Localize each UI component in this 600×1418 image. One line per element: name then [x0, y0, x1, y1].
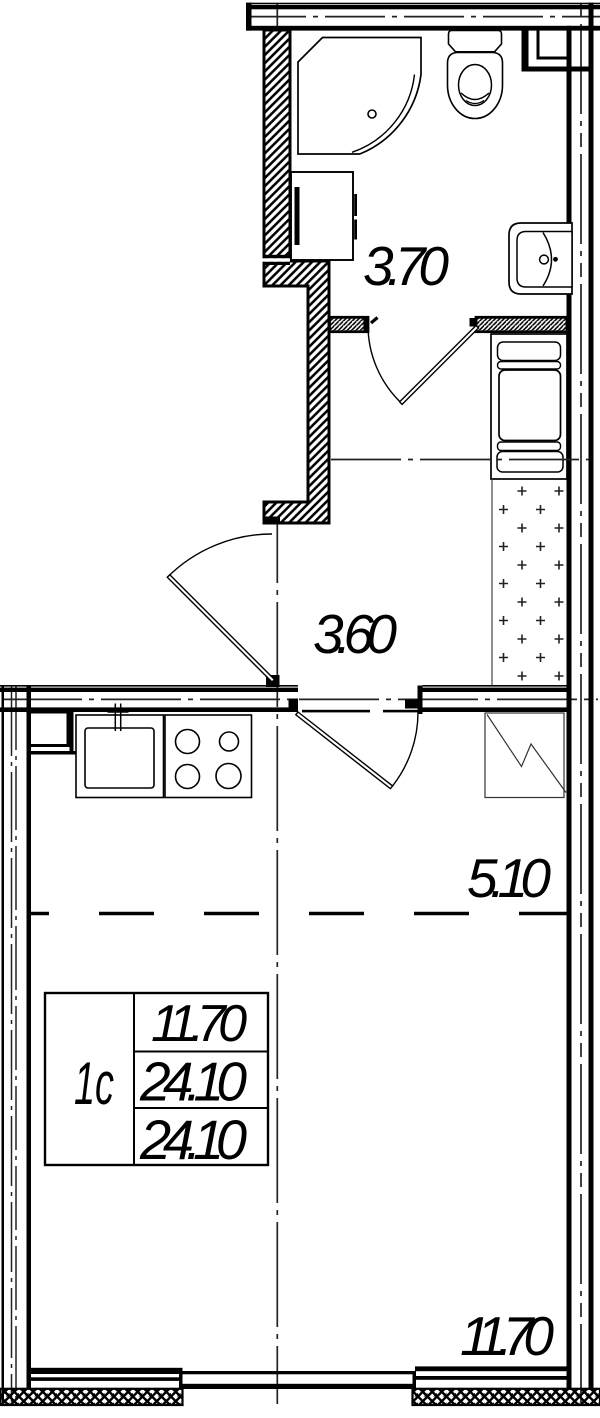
svg-text:11.70: 11.70 [151, 995, 247, 1053]
svg-text:24.10: 24.10 [139, 1108, 247, 1171]
svg-text:3.70: 3.70 [363, 235, 449, 297]
svg-text:11.70: 11.70 [460, 1305, 554, 1367]
svg-text:24.10: 24.10 [139, 1051, 247, 1113]
svg-text:5.10: 5.10 [467, 847, 551, 909]
svg-text:3.60: 3.60 [313, 603, 397, 665]
svg-text:1с: 1с [74, 1050, 114, 1117]
